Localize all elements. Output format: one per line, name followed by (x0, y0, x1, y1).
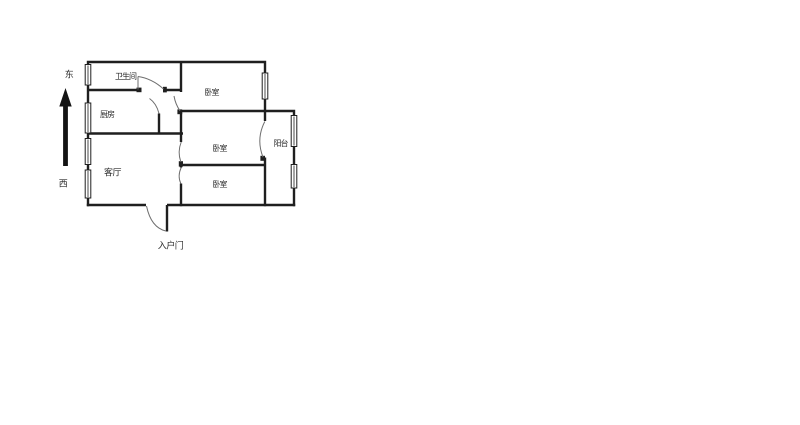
arrow-head (59, 88, 71, 107)
room-label-living-room: 客厅 (104, 169, 121, 178)
door-arc-bedroom-north (174, 96, 180, 111)
door-arc-bedroom-middle (179, 142, 181, 162)
room-label-bedroom-south: 卧室 (213, 181, 227, 189)
jamb-bathroom-right (163, 87, 167, 93)
door-arc-entrance (147, 206, 166, 231)
room-label-bedroom-middle: 卧室 (213, 145, 227, 153)
door-arc-bedroom-south (179, 168, 181, 184)
room-label-balcony: 阳台 (274, 140, 288, 148)
arrow-shaft (63, 105, 68, 166)
doors (138, 77, 265, 232)
door-arc-balcony (260, 122, 265, 158)
room-label-kitchen: 厨房 (100, 111, 114, 119)
jamb-bedroom-middle-door (179, 161, 183, 166)
door-jambs (137, 87, 266, 167)
room-label-bedroom-north: 卧室 (205, 89, 219, 97)
jamb-bathroom-left (137, 88, 142, 93)
door-arc-kitchen (150, 99, 160, 114)
floor-plan-image: 东 西 卫生间 厨房 客厅 卧室 卧室 卧室 阳台 入户门 (0, 0, 800, 425)
door-arc-bathroom (138, 77, 164, 90)
entrance-door-label: 入户门 (158, 242, 184, 251)
compass-east-label: 东 (65, 71, 74, 80)
wall-bedroom-divider-north (180, 111, 294, 206)
room-label-bathroom: 卫生间 (115, 73, 136, 81)
compass-arrow-icon (59, 88, 71, 166)
floor-plan-drawing (0, 0, 800, 425)
compass-west-label: 西 (59, 179, 68, 188)
